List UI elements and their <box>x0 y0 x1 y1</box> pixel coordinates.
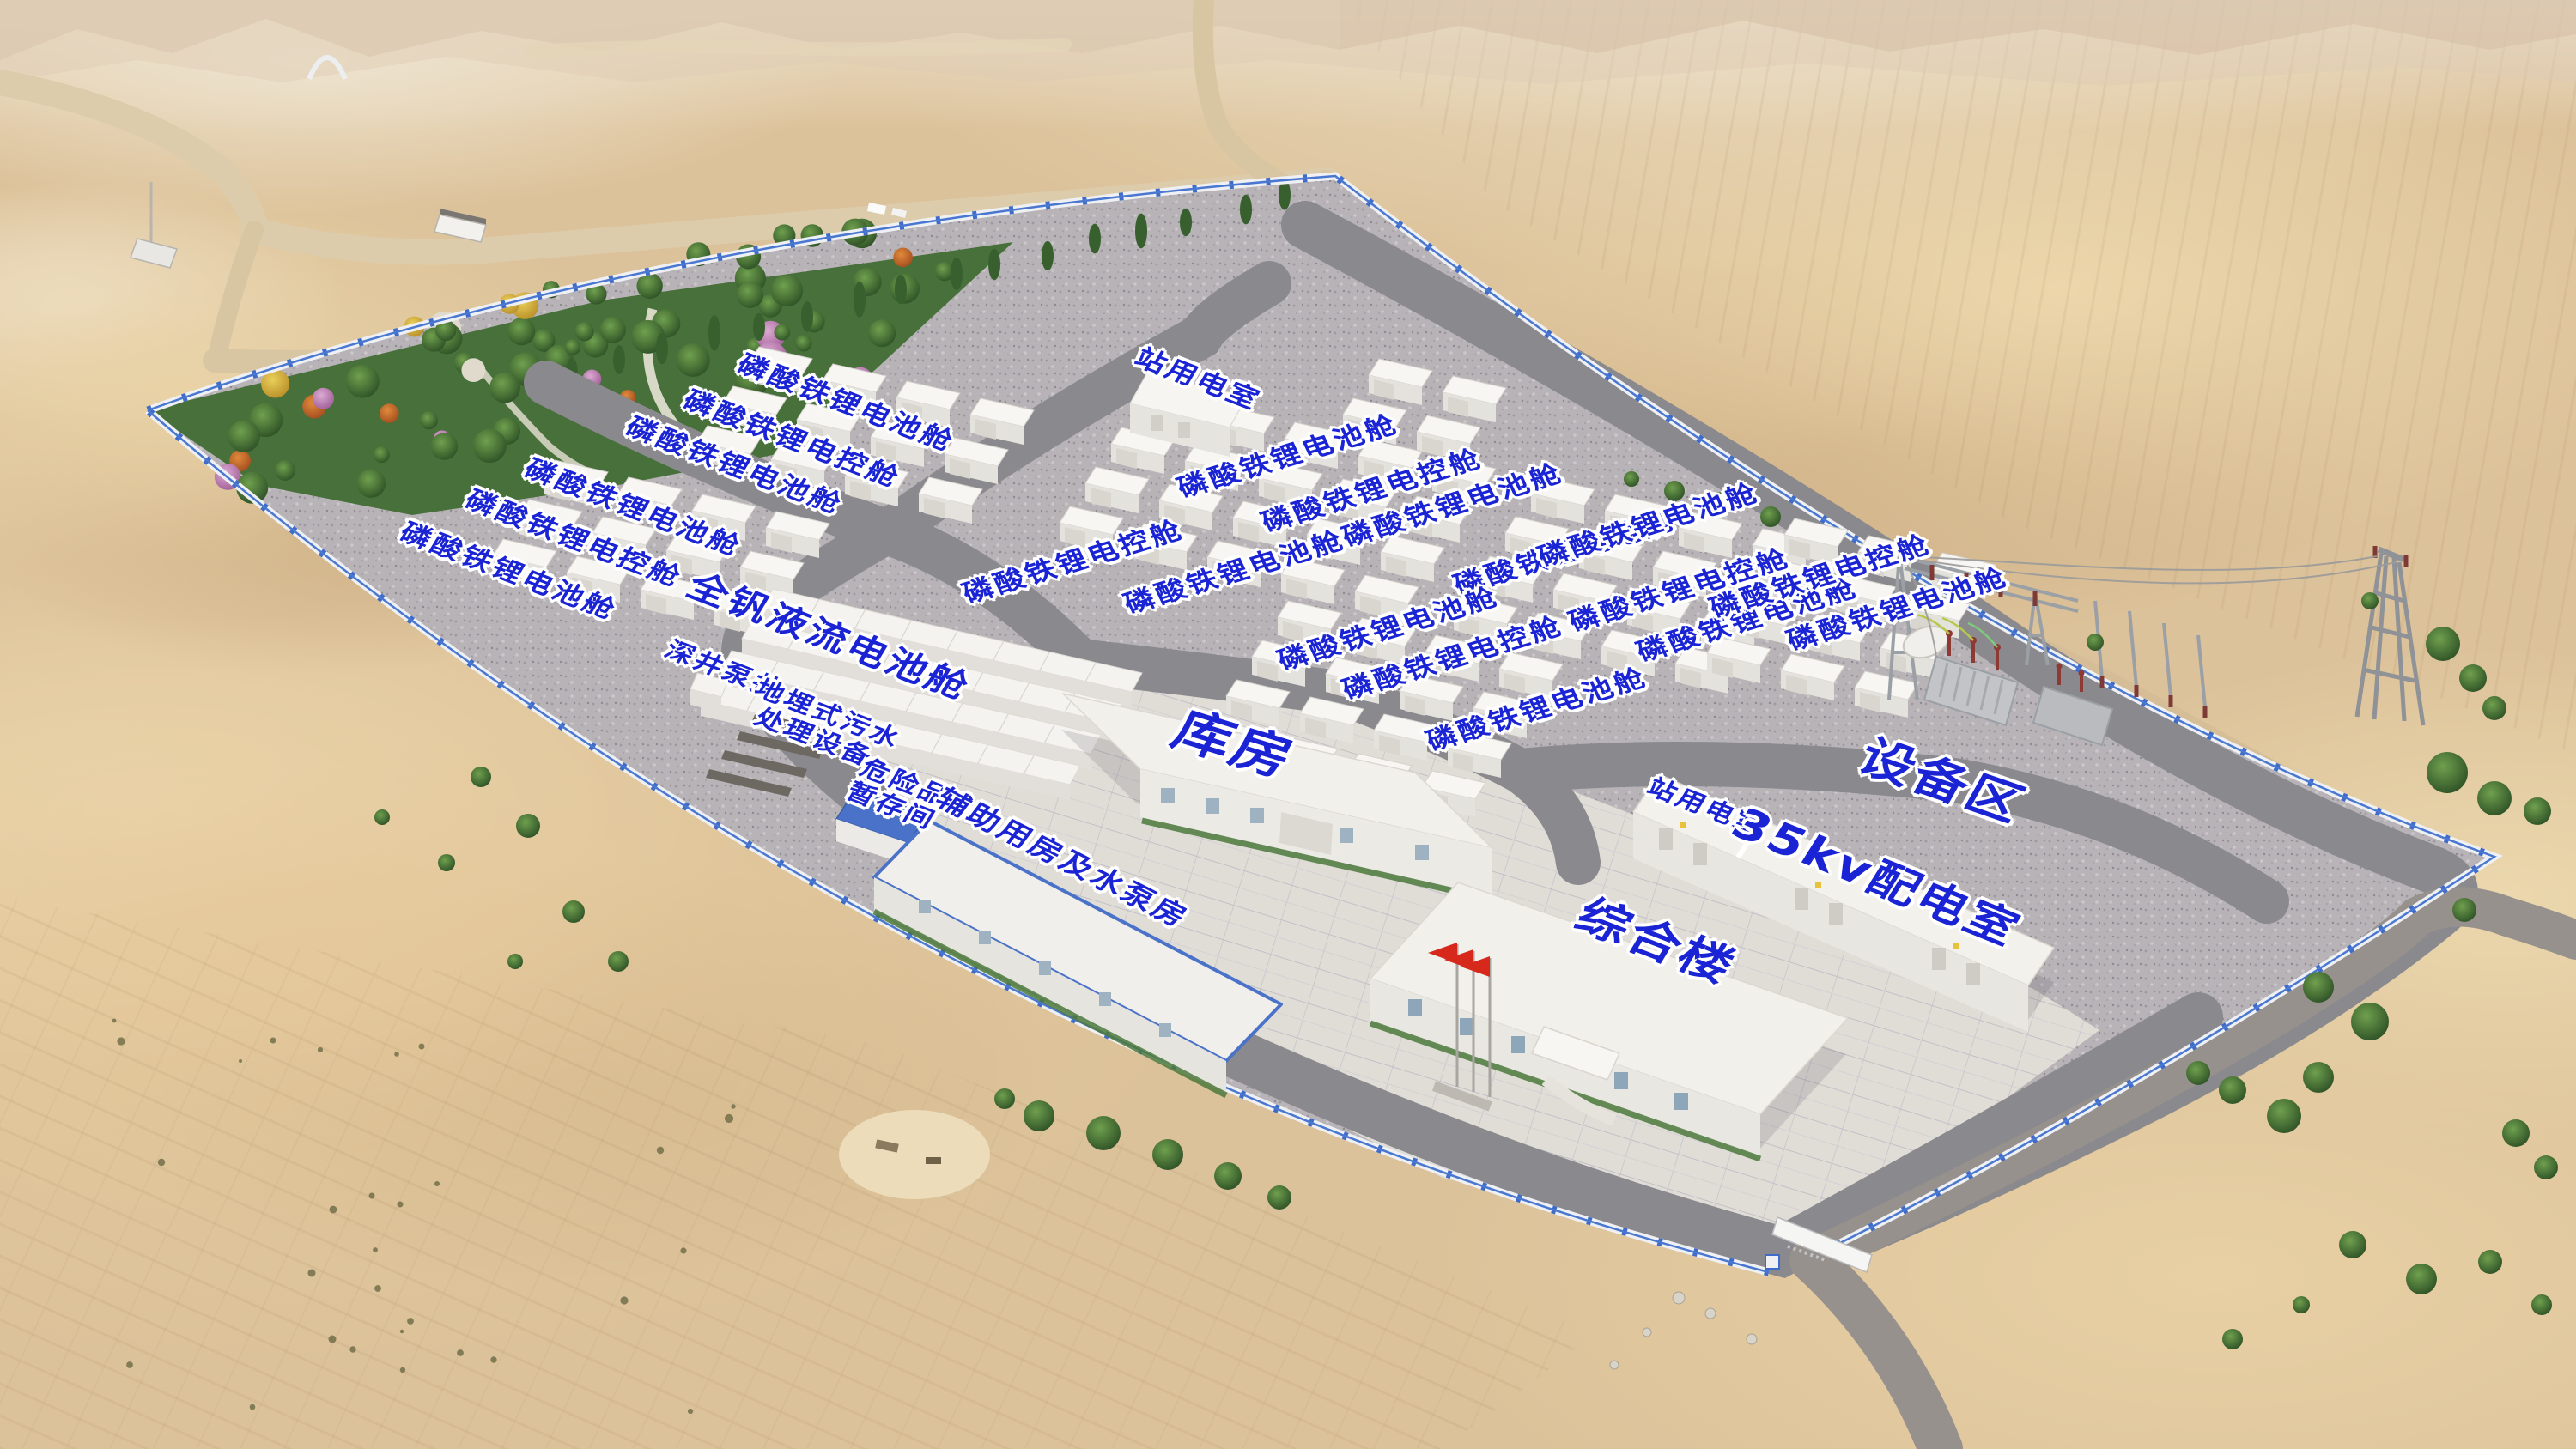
label-equipment-area: 设备区 <box>1850 731 2034 832</box>
label-station-power-room: 站用电室 <box>1130 343 1267 415</box>
label-vanadium-flow-battery: 全钒液流电池舱 <box>680 567 977 706</box>
annotation-layer: 站用电室磷酸铁锂电池舱磷酸铁锂电控舱磷酸铁锂电池舱磷酸铁锂电池舱磷酸铁锂电控舱磷… <box>0 0 2576 1449</box>
label-lfp-battery-cabin: 磷酸铁锂电池舱 <box>1534 479 1764 572</box>
label-warehouse: 库房 <box>1163 703 1304 788</box>
label-office-building: 综合楼 <box>1566 892 1744 993</box>
label-auxiliary-pump-house: 辅助用房及水泵房 <box>930 784 1194 934</box>
label-lfp-battery-cabin: 磷酸铁锂电池舱 <box>1422 664 1652 756</box>
